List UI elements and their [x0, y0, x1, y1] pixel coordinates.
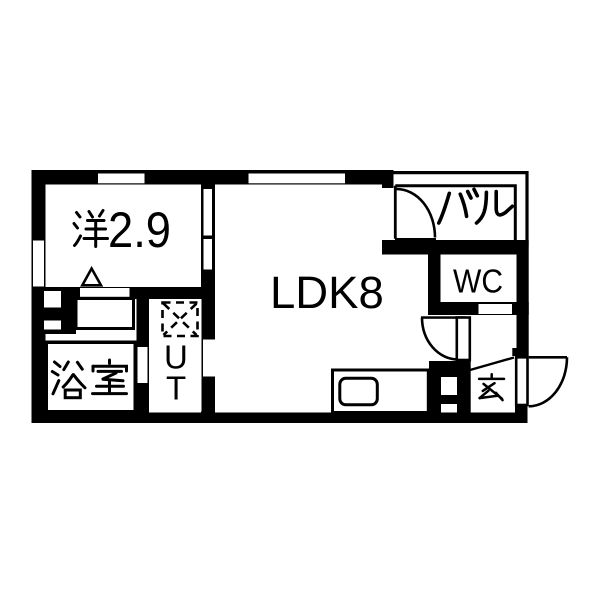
svg-text:T: T — [166, 370, 186, 407]
svg-text:2.9: 2.9 — [108, 202, 171, 258]
svg-text:WC: WC — [453, 263, 503, 300]
svg-text:LDK8: LDK8 — [270, 267, 384, 318]
